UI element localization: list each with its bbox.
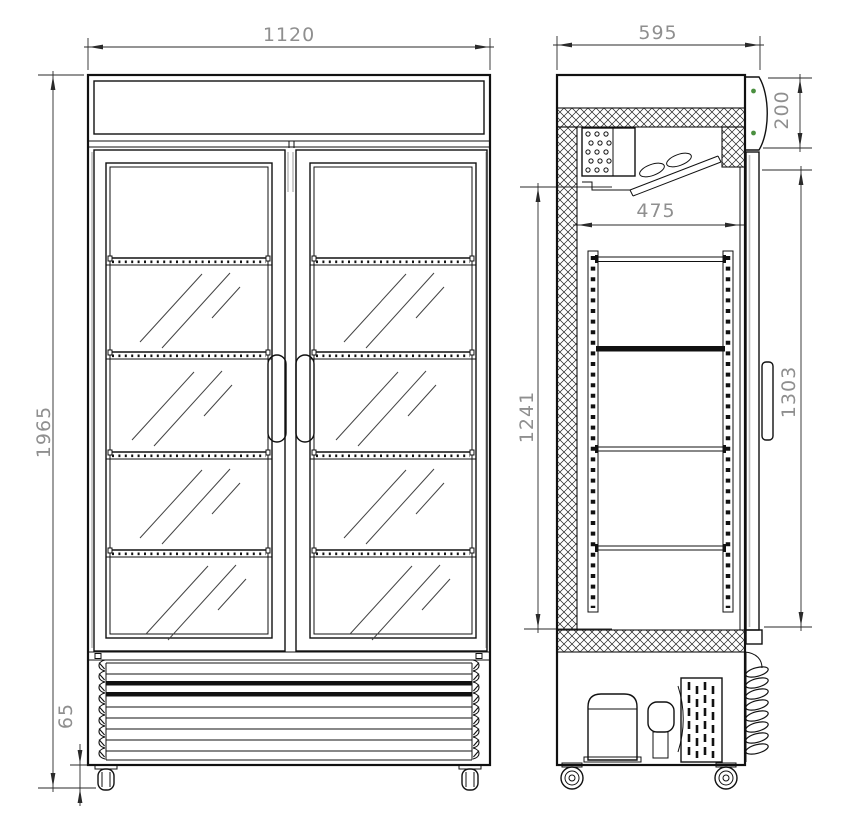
dimension-caster-height: 65 (55, 703, 90, 806)
insulation-front-block (722, 127, 745, 167)
dim-label-caster-height: 65 (55, 703, 77, 729)
shelves-side (595, 255, 726, 552)
light-box-canopy (88, 81, 490, 148)
fan-motor-icon (648, 702, 674, 732)
caster-side-right (715, 763, 737, 789)
technical-drawing: 1120 1965 65 (0, 0, 844, 840)
dim-label-interior-height: 1241 (516, 391, 538, 443)
dimension-front-width: 1120 (84, 24, 494, 70)
shelf-strip (310, 350, 476, 359)
shelf-strip (106, 450, 272, 459)
ventilation-grille-front (88, 652, 490, 760)
dim-label-door-height: 1303 (778, 366, 800, 418)
shelf-rails-side (588, 251, 733, 612)
screw-indicator-icon (751, 89, 756, 94)
screw-indicator-icon (751, 131, 756, 136)
canopy-side-panel (745, 77, 767, 150)
compressor-icon (588, 694, 637, 760)
door-gap-seal (288, 152, 293, 192)
dimension-canopy-height: 200 (763, 74, 812, 152)
glass-door-left (94, 150, 285, 651)
caster-side-left (561, 763, 583, 789)
dimension-side-depth: 595 (553, 22, 764, 70)
insulation-bottom (557, 630, 745, 652)
dim-label-side-depth: 595 (638, 22, 677, 44)
insulation-top (557, 108, 745, 127)
dim-label-canopy-height: 200 (771, 90, 793, 129)
shelf-strip (310, 548, 476, 557)
shelf-strip (310, 450, 476, 459)
shelf-strip (106, 548, 272, 557)
grille-end-caps (99, 660, 479, 759)
caster-front-right (459, 765, 481, 790)
shelves-front (106, 256, 476, 557)
door-handles (268, 355, 314, 442)
shelf-strip (310, 256, 476, 265)
air-duct-tray (630, 156, 721, 196)
shelf-strip (106, 350, 272, 359)
door-handle-left (268, 355, 286, 442)
door-handle-side (762, 362, 773, 440)
insulation-back (557, 127, 577, 630)
evaporator (582, 128, 635, 190)
condenser-coil (681, 678, 722, 762)
glass-door-side (746, 152, 773, 644)
shelf-strip (106, 256, 272, 265)
dim-label-front-width: 1120 (263, 24, 315, 46)
door-handle-right (296, 355, 314, 442)
evaporator-fan-icon (638, 150, 693, 179)
dim-label-interior-depth: 475 (636, 200, 675, 222)
cabinet-side-outline (557, 75, 745, 765)
glass-door-right (296, 150, 487, 651)
dimension-interior-depth: 475 (573, 200, 744, 227)
dimension-door-height: 1303 (762, 166, 812, 631)
glass-reflections (132, 273, 450, 640)
cabinet-front-outline (88, 75, 490, 765)
ventilation-grille-side (745, 652, 769, 762)
side-view: 595 200 475 1241 1303 (516, 22, 812, 789)
compressor-unit (584, 678, 722, 762)
caster-front-left (95, 765, 117, 790)
drawing-page: 1120 1965 65 (0, 0, 844, 840)
dim-label-front-height: 1965 (33, 406, 55, 458)
dimension-front-height: 1965 (33, 71, 96, 792)
front-view: 1120 1965 65 (33, 24, 494, 806)
